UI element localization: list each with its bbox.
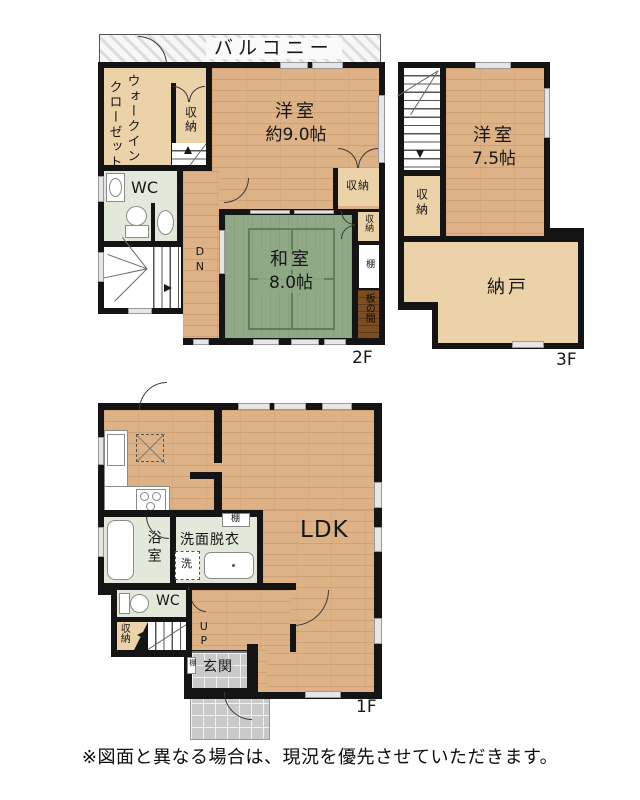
washroom-label: 洗面脱衣 — [180, 533, 240, 549]
ldk-label: LDK — [300, 518, 349, 544]
window — [274, 403, 306, 410]
shelf-label: 棚 — [231, 514, 240, 524]
wall — [440, 62, 446, 178]
room-youshitsu-3f-label: 洋室 — [458, 126, 530, 146]
refrigerator-icon — [107, 434, 125, 466]
wall — [186, 590, 192, 655]
shelf-label: 棚 — [188, 659, 196, 666]
up-label: UP — [197, 620, 209, 648]
wall — [214, 410, 222, 463]
burner-icon — [140, 492, 149, 501]
window — [475, 62, 511, 69]
window — [374, 618, 382, 644]
burner-icon — [152, 492, 161, 501]
plan-1f: LDK 浴室 棚 洗面脱衣 洗 — [0, 370, 640, 770]
toilet-icon — [130, 594, 149, 613]
wall — [251, 650, 258, 692]
room-youshitsu-3f-size: 7.5帖 — [458, 150, 530, 169]
wc-1f-label: WC — [156, 594, 180, 610]
window — [238, 403, 270, 410]
closet-label: 収納 — [414, 188, 427, 218]
window — [544, 88, 550, 138]
notch-cutout — [398, 310, 432, 349]
bathtub-icon — [107, 520, 134, 580]
basin-dot — [232, 564, 235, 567]
floor-label-1f: 1F — [356, 698, 377, 717]
hatch-x-line — [137, 435, 165, 463]
floor-label-3f: 3F — [556, 351, 577, 370]
window — [374, 482, 382, 508]
closet-label: 収納 — [118, 623, 129, 643]
stair-arrow-icon — [137, 631, 145, 639]
window — [98, 527, 104, 557]
laundry-label: 洗 — [181, 558, 192, 570]
room-nando-label: 納戸 — [470, 278, 546, 298]
window — [305, 691, 341, 698]
genkan-label: 玄関 — [203, 660, 233, 676]
disclaimer-note: ※図面と異なる場合は、現況を優先させていただきます。 — [0, 743, 640, 769]
wall — [263, 583, 296, 590]
stair-arrow-icon — [416, 150, 424, 158]
wall — [440, 230, 446, 238]
room-ldk — [257, 650, 267, 692]
entry-door-arc-icon — [139, 382, 167, 410]
washbasin-icon — [204, 552, 254, 579]
hatch-mark-icon — [136, 434, 164, 462]
room-nando — [404, 242, 438, 302]
wall — [257, 510, 263, 590]
plan-3f: DN 収納 洋室 7.5帖 納戸 3F — [0, 0, 640, 380]
wall — [290, 624, 296, 652]
toilet-icon — [119, 593, 130, 614]
floor-plan-page: バルコニー ウォークイン クローゼット 収納 UP 洋室 約9.0帖 WC — [0, 0, 640, 800]
window — [322, 403, 352, 410]
window — [512, 341, 544, 348]
window — [98, 437, 104, 465]
wall — [214, 472, 222, 510]
window — [374, 527, 382, 552]
